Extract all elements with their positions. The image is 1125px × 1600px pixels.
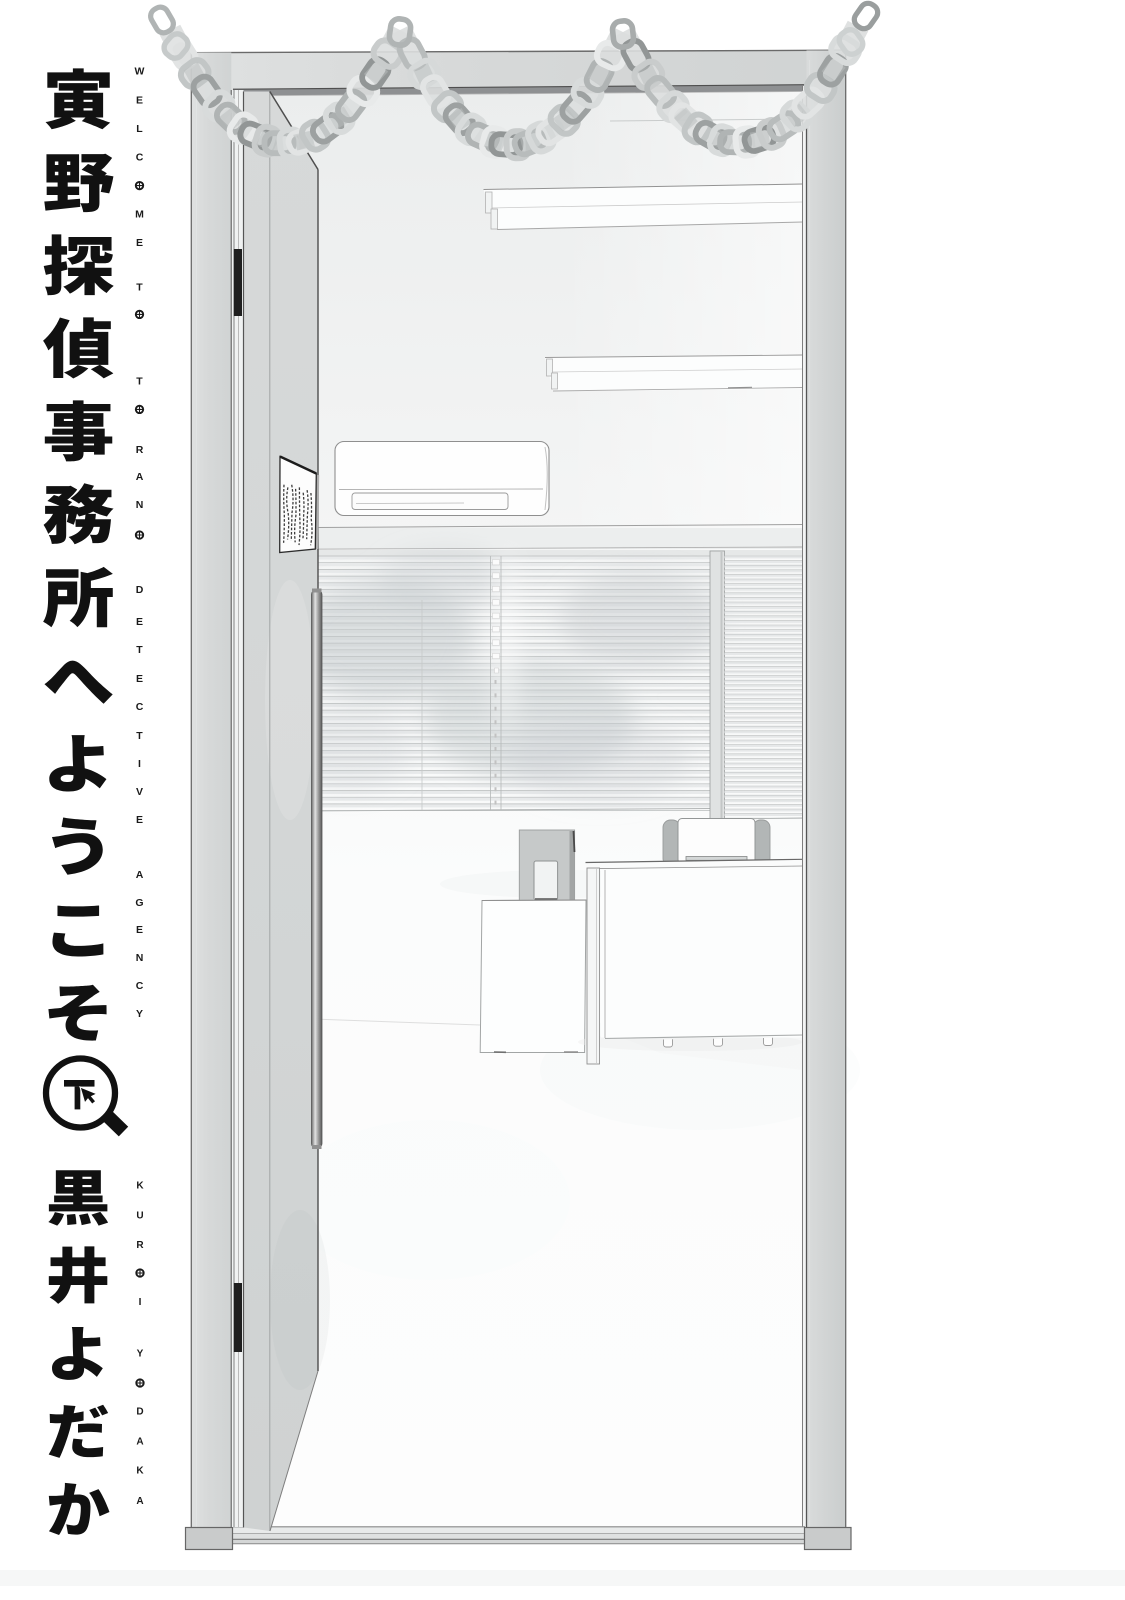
svg-text:R: R	[136, 444, 144, 456]
svg-text:K: K	[136, 1181, 144, 1192]
svg-text:A: A	[136, 1496, 143, 1507]
svg-text:N: N	[136, 952, 144, 964]
svg-text:E: E	[136, 924, 143, 936]
svg-text:M: M	[135, 208, 144, 220]
svg-text:W: W	[135, 65, 145, 77]
svg-text:D: D	[136, 584, 144, 596]
svg-text:G: G	[135, 897, 143, 909]
svg-text:D: D	[136, 1407, 143, 1418]
svg-text:R: R	[136, 1240, 144, 1251]
svg-text:A: A	[136, 869, 144, 881]
svg-text:E: E	[136, 814, 143, 826]
svg-text:N: N	[136, 499, 144, 511]
svg-text:V: V	[136, 786, 143, 798]
svg-text:E: E	[136, 673, 143, 685]
svg-text:T: T	[136, 375, 143, 387]
svg-text:L: L	[136, 123, 143, 135]
svg-text:T: T	[136, 730, 143, 742]
svg-text:A: A	[136, 1437, 143, 1448]
svg-text:I: I	[139, 1297, 142, 1308]
svg-text:C: C	[136, 152, 144, 164]
svg-text:C: C	[136, 980, 144, 992]
svg-text:E: E	[136, 95, 143, 107]
svg-text:A: A	[136, 471, 144, 483]
svg-text:T: T	[136, 282, 143, 294]
svg-text:Y: Y	[137, 1349, 144, 1360]
svg-text:E: E	[136, 616, 143, 628]
svg-text:C: C	[136, 701, 144, 713]
svg-text:E: E	[136, 237, 143, 249]
svg-text:U: U	[136, 1211, 143, 1222]
svg-text:Y: Y	[136, 1008, 143, 1020]
svg-text:T: T	[136, 644, 143, 656]
svg-text:I: I	[138, 758, 141, 770]
svg-text:K: K	[136, 1466, 144, 1477]
